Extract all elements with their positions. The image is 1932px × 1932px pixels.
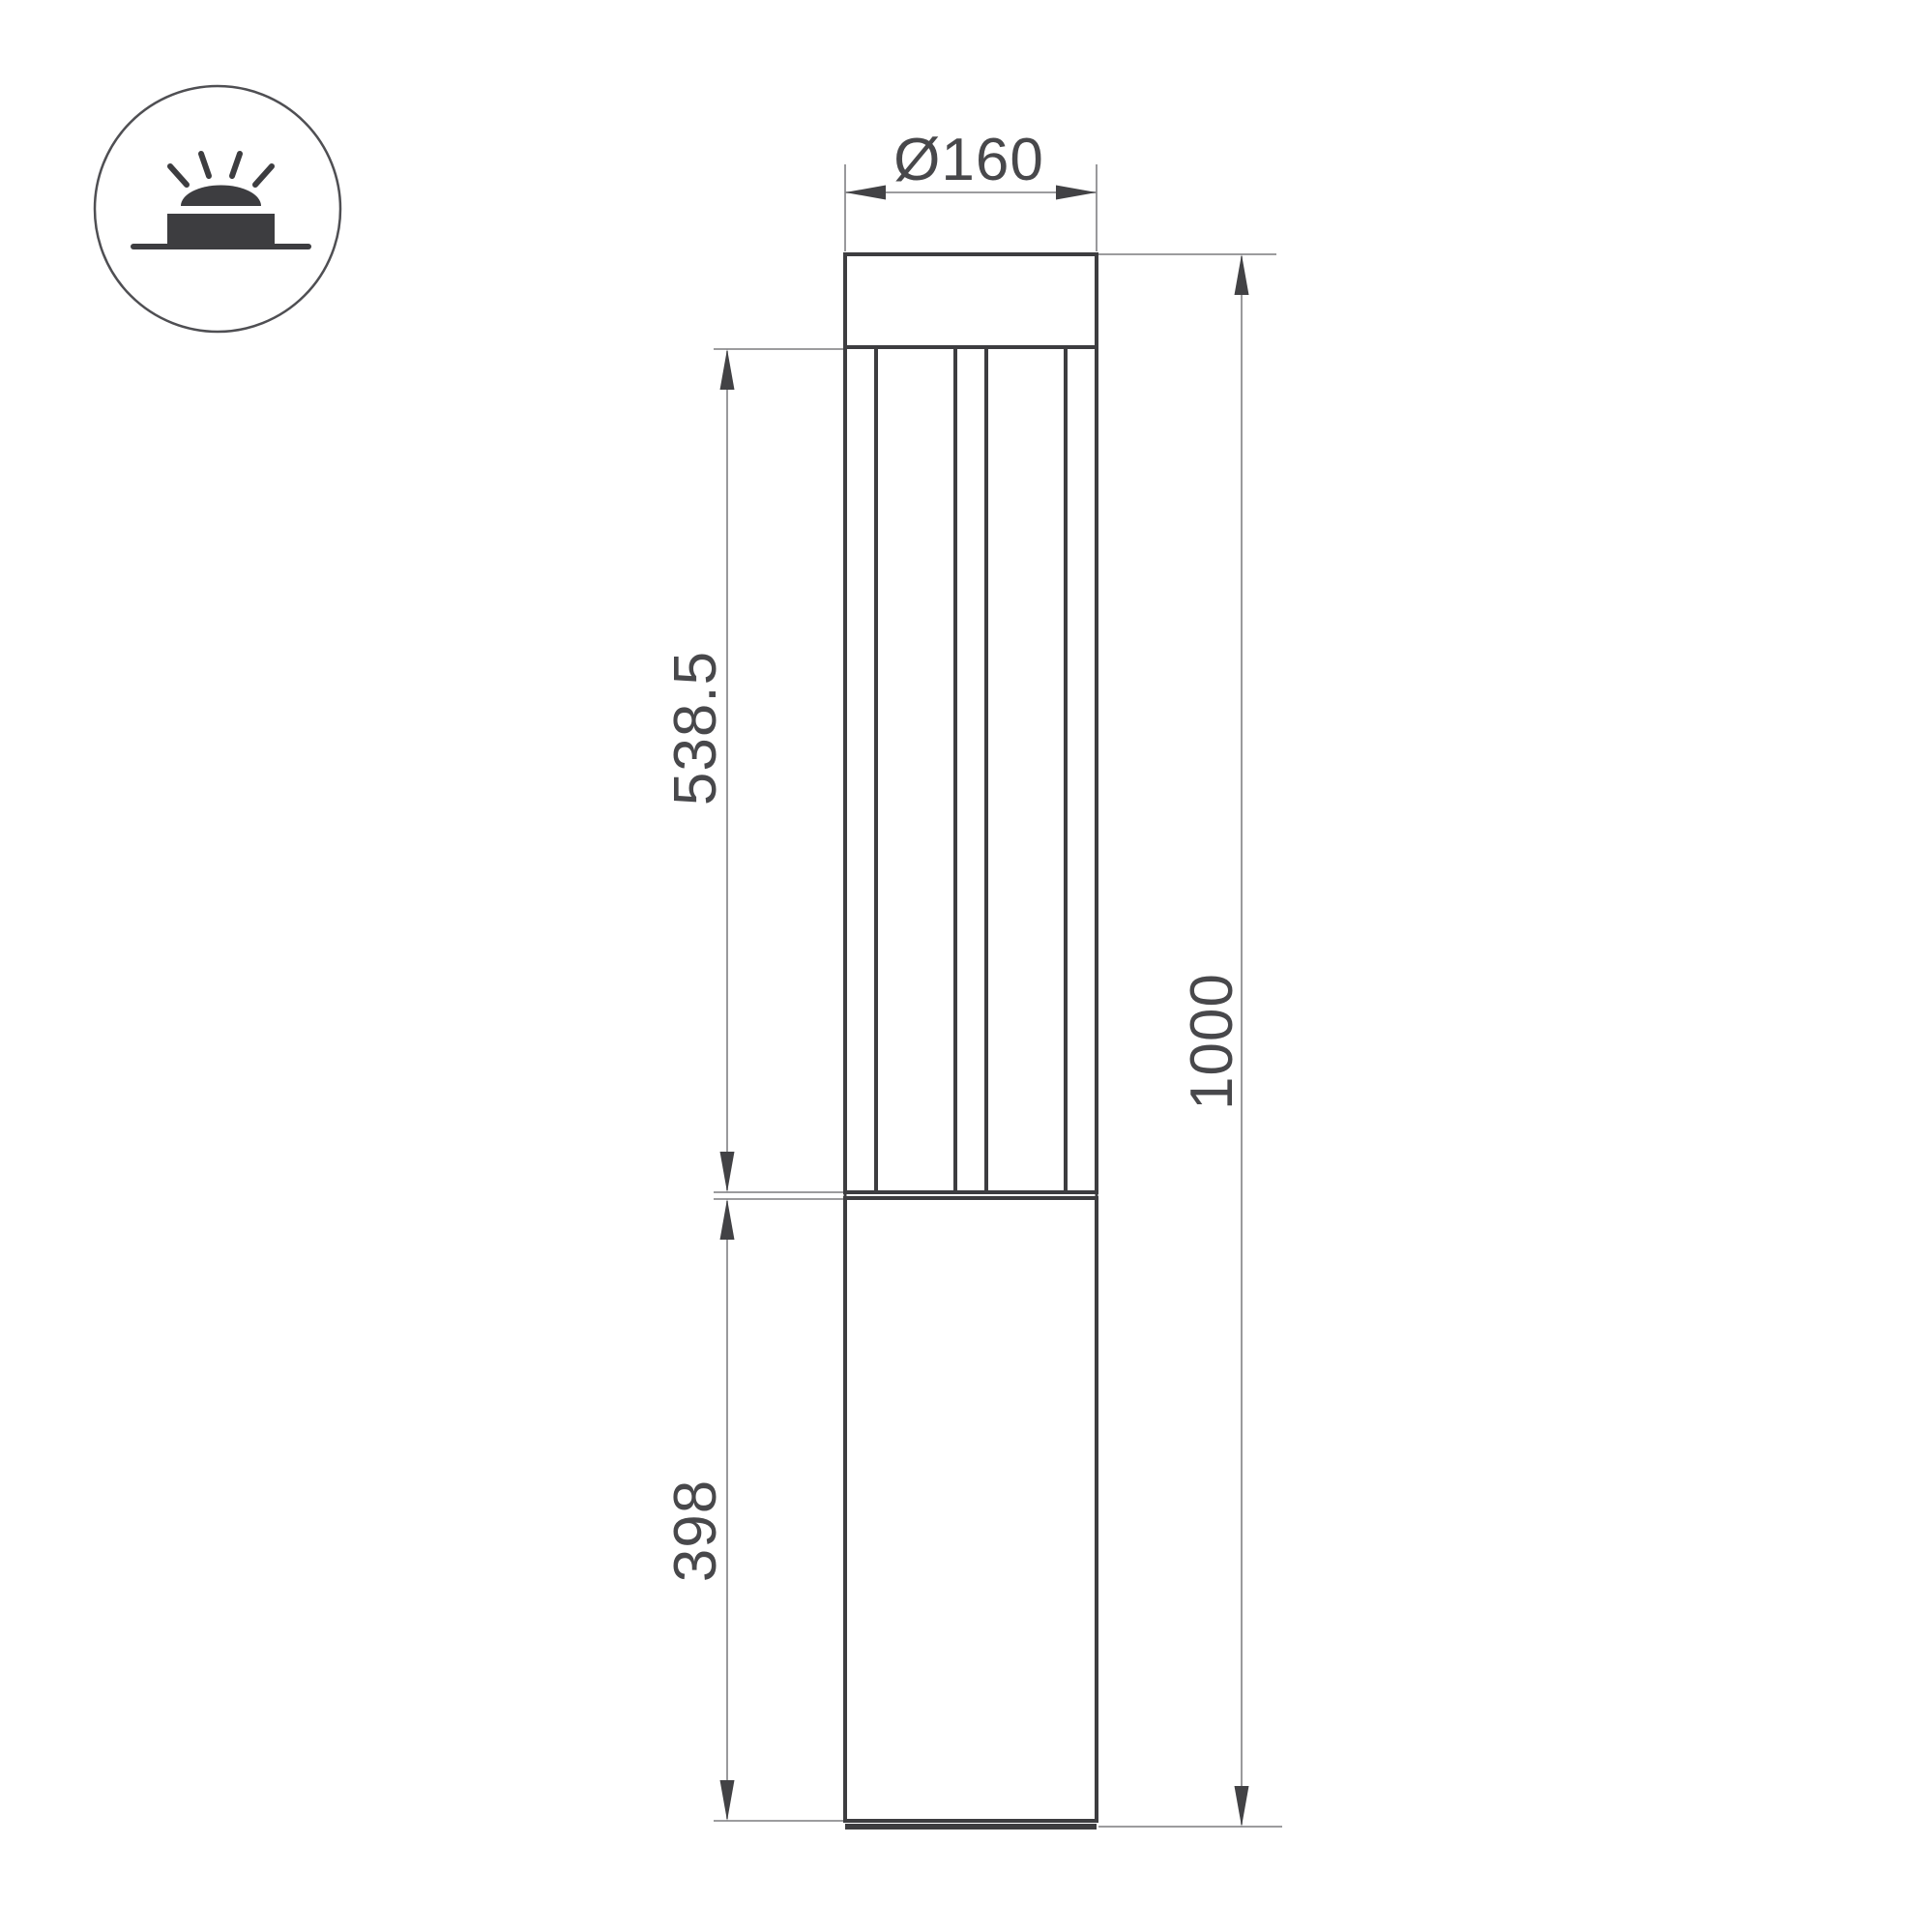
fixture-body xyxy=(845,1198,1097,1821)
arrow-down xyxy=(720,1152,735,1192)
arrow-up xyxy=(720,1199,735,1240)
surface-mount-badge xyxy=(95,86,340,332)
light-ray xyxy=(255,166,272,185)
diameter-label: Ø160 xyxy=(893,127,1044,193)
light-ray xyxy=(232,154,240,176)
arrow-down xyxy=(1235,1786,1249,1827)
light-rays-icon xyxy=(170,154,272,185)
arrow-up xyxy=(720,349,735,390)
lamp-base-icon xyxy=(167,214,275,244)
surface-light-icon xyxy=(131,154,311,249)
drawing-canvas: Ø160 538.5 398 1000 xyxy=(0,0,1932,1932)
upper-section-label: 538.5 xyxy=(662,651,729,805)
arrow-left xyxy=(845,186,886,200)
total-height-label: 1000 xyxy=(1179,973,1245,1110)
badge-circle xyxy=(95,86,340,332)
arrow-right xyxy=(1056,186,1097,200)
fixture-cap xyxy=(845,254,1097,347)
arrow-up xyxy=(1235,254,1249,295)
fixture-lamp-section xyxy=(845,347,1097,1192)
ground-line-icon xyxy=(131,244,311,249)
light-ray xyxy=(170,166,187,185)
lamp-dome-icon xyxy=(181,186,261,207)
bollard-drawing xyxy=(845,254,1097,1830)
fixture-base-plate xyxy=(845,1824,1097,1830)
lower-section-label: 398 xyxy=(662,1479,729,1582)
light-ray xyxy=(201,154,209,176)
arrow-down xyxy=(720,1780,735,1821)
